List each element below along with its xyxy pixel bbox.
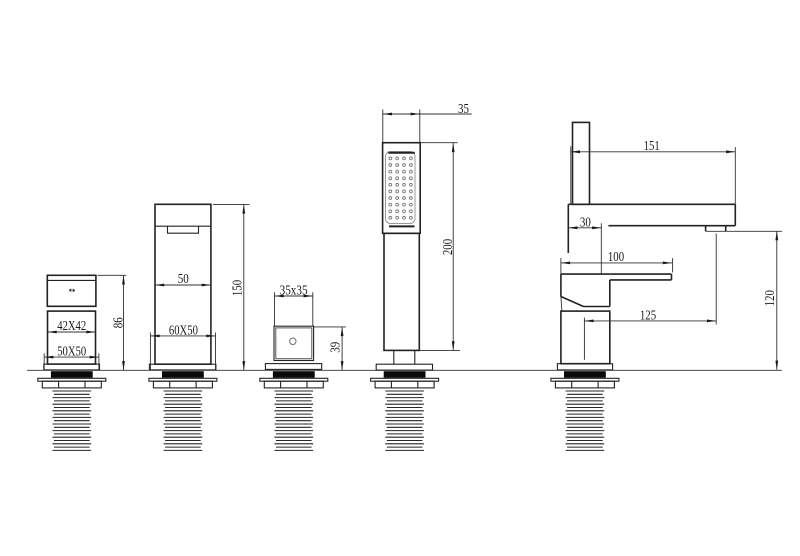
svg-text:86: 86 xyxy=(111,317,126,328)
svg-text:35: 35 xyxy=(458,101,469,116)
svg-text:35x35: 35x35 xyxy=(280,283,308,298)
svg-text:200: 200 xyxy=(440,239,455,255)
svg-text:151: 151 xyxy=(644,138,660,153)
svg-text:100: 100 xyxy=(608,249,624,264)
svg-text:125: 125 xyxy=(640,307,656,322)
svg-text:42X42: 42X42 xyxy=(57,318,86,333)
svg-text:120: 120 xyxy=(762,290,777,306)
svg-text:50X50: 50X50 xyxy=(57,344,86,359)
svg-text:39: 39 xyxy=(328,341,343,352)
svg-text:50: 50 xyxy=(178,271,189,286)
svg-text:30: 30 xyxy=(580,215,591,230)
svg-text:150: 150 xyxy=(230,280,245,296)
